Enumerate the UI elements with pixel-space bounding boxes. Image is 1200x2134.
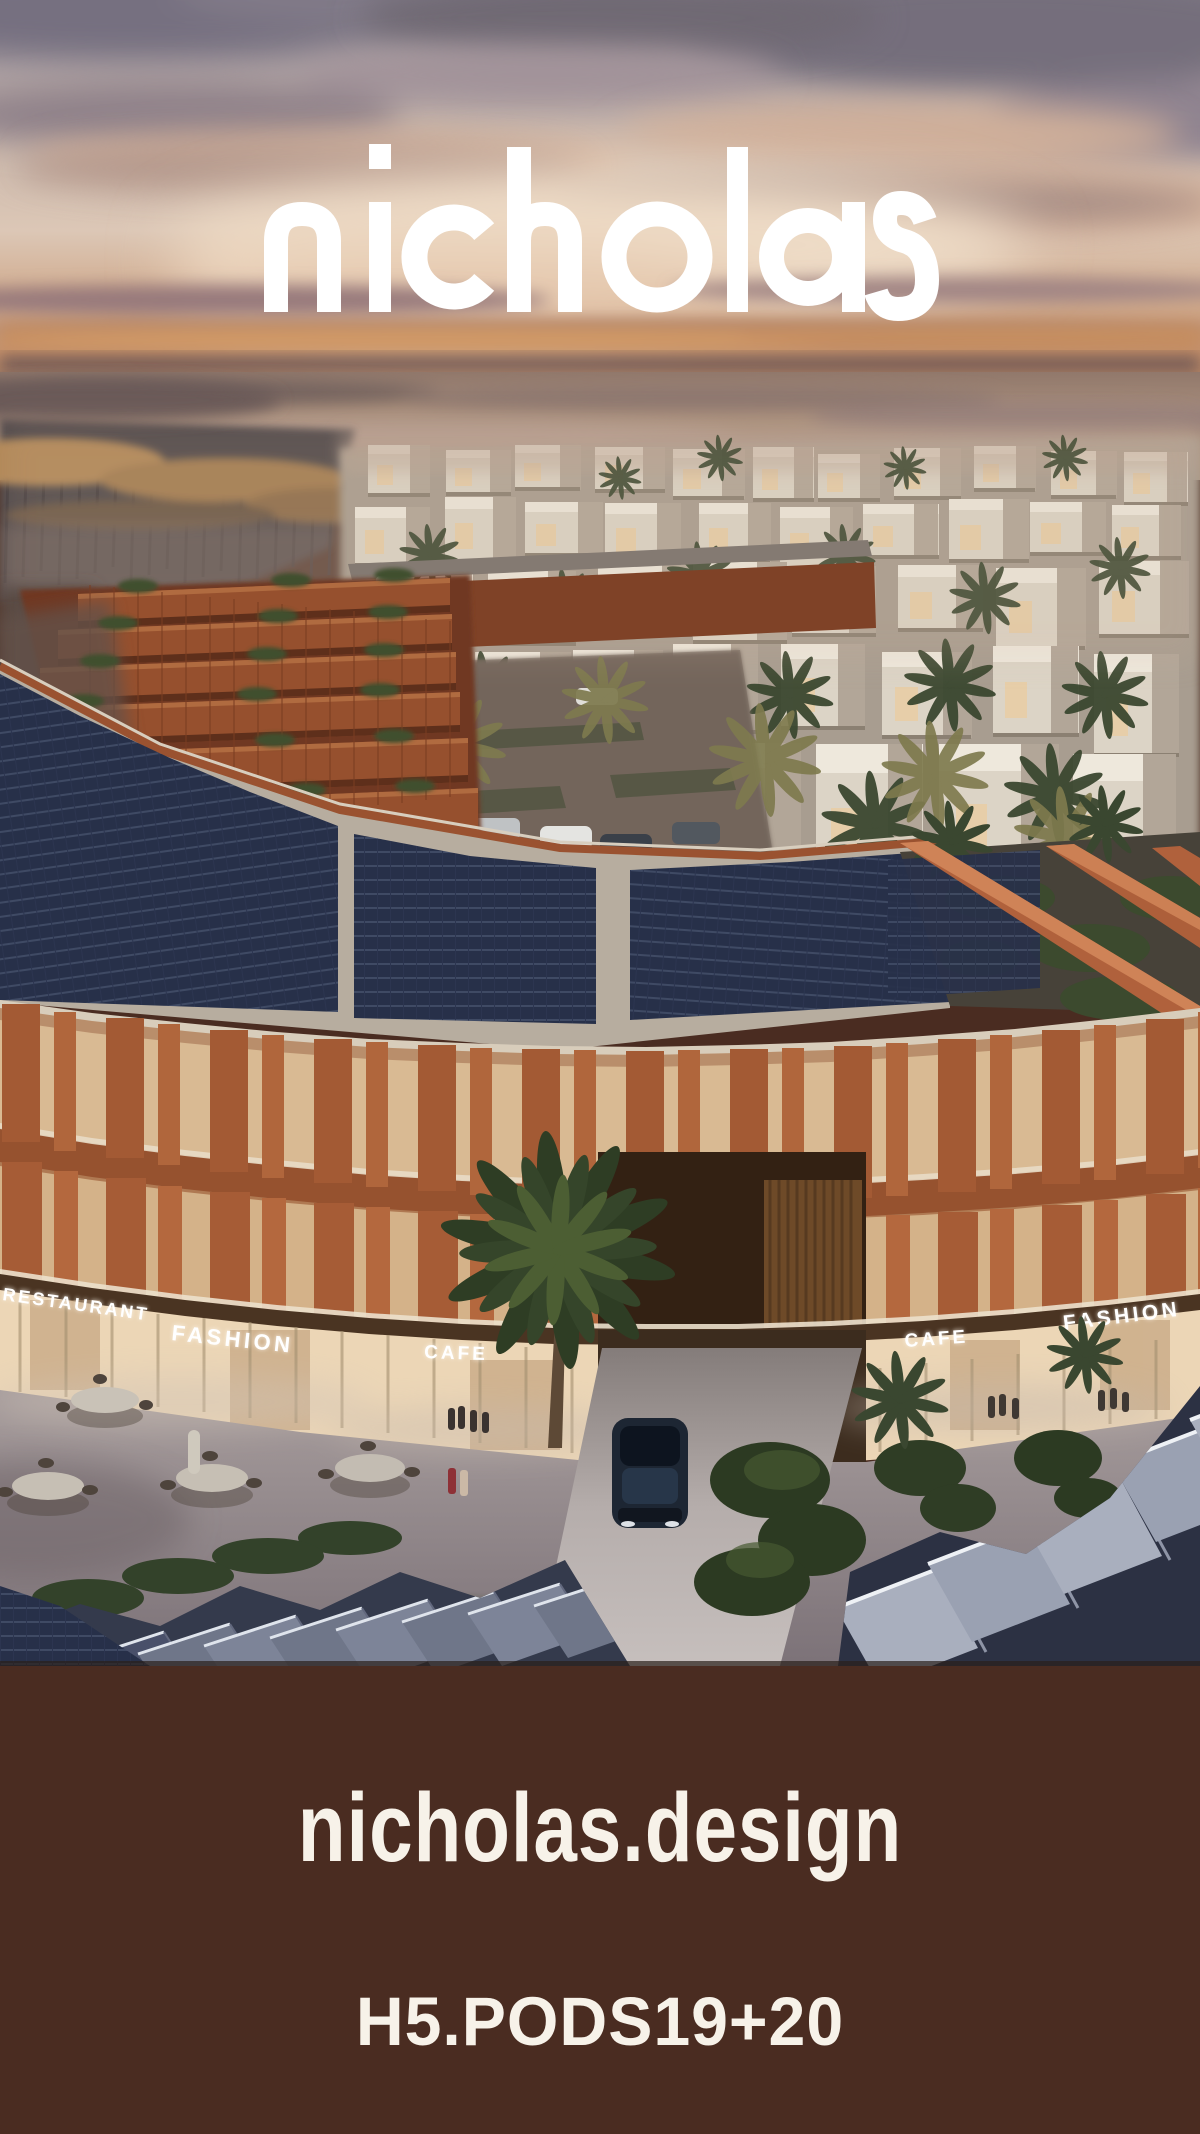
- svg-text:CAFE: CAFE: [904, 1327, 969, 1352]
- svg-text:CAFE: CAFE: [424, 1342, 488, 1365]
- svg-text:H5.PODS19+20: H5.PODS19+20: [356, 1984, 844, 2061]
- svg-text:nicholas.design: nicholas.design: [298, 1773, 902, 1882]
